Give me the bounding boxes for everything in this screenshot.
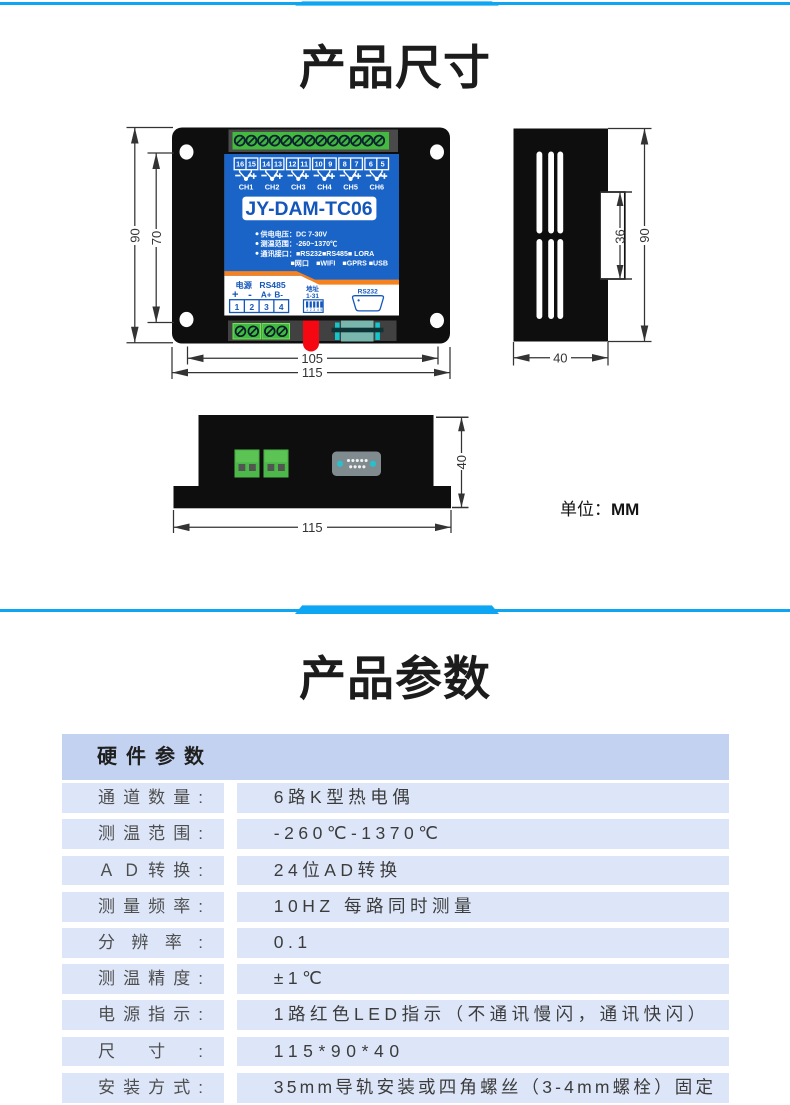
svg-text:1: 1: [306, 308, 308, 312]
svg-text:3: 3: [313, 308, 315, 312]
svg-text:3: 3: [264, 302, 269, 312]
svg-text:■网口 ■WIFI ■GPRS ■USB: ■网口 ■WIFI ■GPRS ■USB: [291, 260, 389, 268]
svg-text:90: 90: [637, 228, 652, 242]
svg-text:15: 15: [248, 159, 256, 168]
svg-text:36: 36: [613, 229, 628, 243]
svg-text:115: 115: [302, 520, 323, 535]
svg-text:CH4: CH4: [317, 183, 333, 192]
svg-text:4: 4: [279, 302, 284, 312]
svg-text:40: 40: [454, 455, 469, 469]
svg-text:70: 70: [149, 231, 164, 245]
svg-text:RS485: RS485: [259, 280, 285, 290]
svg-text:5: 5: [381, 159, 385, 168]
svg-text:40: 40: [553, 350, 567, 365]
svg-text:CH2: CH2: [265, 183, 280, 192]
svg-text:16: 16: [236, 159, 244, 168]
svg-text:4: 4: [317, 308, 319, 312]
svg-text:测温范围：-260~1370℃: 测温范围：-260~1370℃: [261, 239, 338, 248]
svg-text:11: 11: [300, 159, 308, 168]
svg-text:CH5: CH5: [343, 183, 358, 192]
svg-text:1: 1: [235, 302, 240, 312]
svg-text:14: 14: [262, 159, 270, 168]
svg-text:6: 6: [369, 159, 373, 168]
svg-text:CH6: CH6: [369, 183, 384, 192]
svg-text:10: 10: [315, 159, 323, 168]
svg-text:8: 8: [343, 159, 347, 168]
svg-text:12: 12: [288, 159, 296, 168]
svg-text:JY-DAM-TC06: JY-DAM-TC06: [245, 198, 372, 220]
svg-text:2: 2: [249, 302, 254, 312]
svg-text:7: 7: [355, 159, 359, 168]
svg-text:供电电压：DC 7-30V: 供电电压：DC 7-30V: [260, 229, 328, 238]
svg-text:CH1: CH1: [239, 183, 254, 192]
svg-text:115: 115: [302, 365, 323, 380]
svg-text:90: 90: [128, 228, 143, 242]
svg-text:9: 9: [328, 159, 332, 168]
svg-text:2: 2: [310, 308, 312, 312]
svg-text:地址: 地址: [306, 284, 319, 293]
svg-text:5: 5: [320, 308, 322, 312]
svg-text:13: 13: [274, 159, 282, 168]
svg-text:通讯接口：■RS232■RS485■ LORA: 通讯接口：■RS232■RS485■ LORA: [261, 249, 375, 258]
svg-text:RS232: RS232: [358, 289, 378, 296]
svg-text:CH3: CH3: [291, 183, 306, 192]
svg-text:B-: B-: [274, 290, 283, 299]
svg-text:A+: A+: [261, 290, 272, 299]
svg-text:1-31: 1-31: [306, 293, 319, 300]
svg-text:105: 105: [301, 351, 323, 366]
